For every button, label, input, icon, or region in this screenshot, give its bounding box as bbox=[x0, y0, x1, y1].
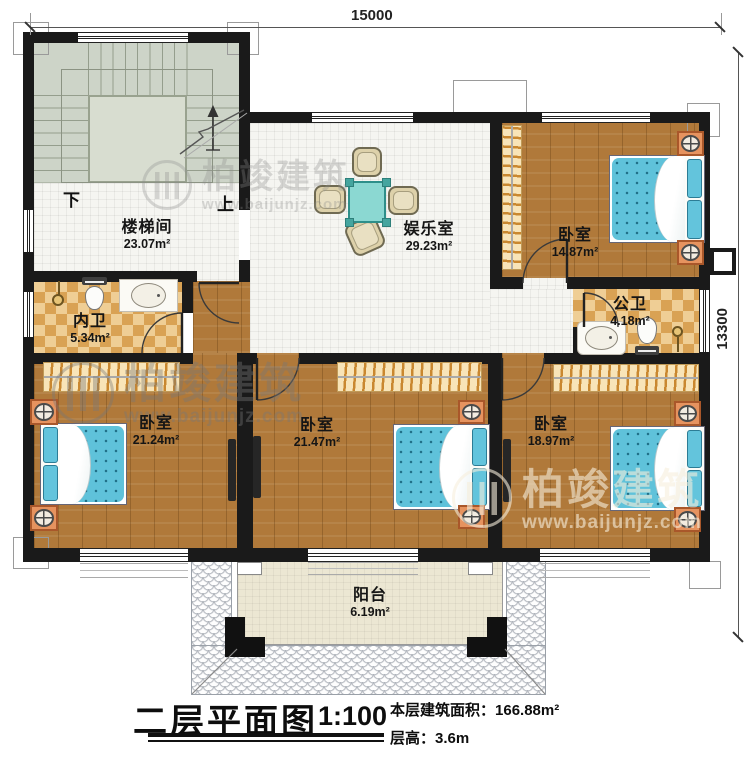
wall-segment bbox=[418, 548, 540, 562]
room-label-bedroom-s: 卧室21.47m² bbox=[269, 416, 365, 450]
wall-segment bbox=[237, 364, 253, 548]
wall-segment bbox=[567, 277, 710, 289]
stair-down-label: 下 bbox=[63, 186, 80, 211]
table-corner bbox=[382, 178, 391, 187]
dimension-line-right bbox=[738, 52, 739, 638]
rarea: 18.97m² bbox=[503, 434, 599, 449]
wall-segment bbox=[413, 112, 542, 123]
tv bbox=[253, 436, 261, 498]
pillow bbox=[687, 159, 702, 198]
title-underline bbox=[148, 733, 384, 737]
window bbox=[80, 548, 188, 562]
room-label-bath-inner: 内卫5.34m² bbox=[42, 312, 138, 346]
chair bbox=[388, 186, 419, 215]
headboard bbox=[684, 427, 704, 510]
table-corner bbox=[345, 178, 354, 187]
room-label-balcony: 阳台6.19m² bbox=[322, 586, 418, 620]
headboard bbox=[684, 156, 704, 242]
wall-segment bbox=[544, 353, 710, 364]
chimney-outline bbox=[453, 80, 527, 115]
pillow bbox=[687, 430, 702, 468]
pillow bbox=[687, 470, 702, 508]
floor-plan: 下 上 bbox=[0, 0, 750, 757]
decor: 3.6m bbox=[435, 730, 469, 747]
floor-area-text: 本层建筑面积：166.88m² bbox=[390, 699, 559, 720]
floor-height-text: 层高：3.6m bbox=[390, 727, 469, 748]
window bbox=[23, 210, 34, 252]
rname: 卧室 bbox=[503, 415, 599, 434]
window-sill bbox=[540, 563, 650, 578]
room-label-bedroom-se: 卧室18.97m² bbox=[503, 415, 599, 449]
pillow bbox=[472, 468, 487, 506]
nightstand bbox=[677, 131, 704, 156]
bed bbox=[610, 426, 705, 511]
wardrobe bbox=[43, 362, 180, 392]
wall-segment bbox=[490, 277, 523, 289]
pillow bbox=[43, 427, 58, 463]
rname: 卧室 bbox=[527, 226, 623, 245]
decor: 层高： bbox=[390, 730, 435, 747]
rname: 阳台 bbox=[322, 586, 418, 605]
sink-basin bbox=[131, 283, 166, 308]
flue-box bbox=[710, 248, 736, 275]
dimension-height: 13300 bbox=[714, 305, 731, 353]
door-gap bbox=[523, 277, 567, 289]
balcony-post bbox=[237, 562, 262, 575]
rname: 娱乐室 bbox=[381, 220, 477, 239]
wardrobe bbox=[502, 125, 522, 270]
window bbox=[78, 32, 188, 43]
headboard bbox=[469, 425, 489, 509]
nightstand bbox=[458, 400, 485, 424]
floor-drain bbox=[52, 294, 64, 306]
wardrobe bbox=[337, 362, 482, 392]
wall-segment bbox=[249, 112, 312, 123]
wall-segment bbox=[650, 548, 710, 562]
wall-segment bbox=[490, 112, 502, 277]
rarea: 29.23m² bbox=[381, 239, 477, 254]
t-tank bbox=[82, 277, 107, 285]
bed bbox=[609, 155, 705, 243]
passage-floor bbox=[490, 289, 575, 353]
headboard bbox=[41, 424, 61, 504]
nightstand bbox=[30, 399, 58, 425]
decor: 本层建筑面积： bbox=[390, 702, 495, 719]
sink-basin bbox=[585, 326, 618, 350]
dimension-width: 15000 bbox=[348, 7, 396, 24]
rarea: 4.18m² bbox=[582, 314, 678, 329]
rname: 卧室 bbox=[269, 416, 365, 435]
pillow bbox=[472, 428, 487, 466]
wardrobe bbox=[553, 364, 699, 392]
balcony-door-sill bbox=[308, 562, 418, 575]
window bbox=[540, 548, 650, 562]
rarea: 6.19m² bbox=[322, 605, 418, 620]
rname: 卧室 bbox=[108, 414, 204, 433]
rarea: 21.47m² bbox=[269, 435, 365, 450]
corner-marker bbox=[689, 561, 721, 589]
wall-segment bbox=[239, 43, 250, 210]
balcony-sliding-door bbox=[308, 548, 418, 562]
rname: 公卫 bbox=[582, 295, 678, 314]
wall-segment bbox=[488, 353, 502, 548]
wall-segment bbox=[23, 32, 34, 210]
nightstand bbox=[30, 505, 58, 531]
nightstand bbox=[674, 507, 701, 532]
rarea: 5.34m² bbox=[42, 331, 138, 346]
window-sill bbox=[80, 563, 188, 578]
extension-line bbox=[30, 13, 31, 35]
title-underline bbox=[148, 740, 384, 742]
rname: 楼梯间 bbox=[99, 218, 195, 237]
rarea: 14.87m² bbox=[527, 245, 623, 260]
decor: 166.88m² bbox=[495, 702, 559, 719]
t-bowl bbox=[85, 286, 104, 310]
nightstand bbox=[674, 401, 701, 426]
dimension-line-top bbox=[30, 27, 722, 28]
wall-segment bbox=[182, 271, 193, 313]
window bbox=[699, 290, 710, 352]
room-label-bedroom-sw: 卧室21.24m² bbox=[108, 414, 204, 448]
rarea: 21.24m² bbox=[108, 433, 204, 448]
floor-drain bbox=[677, 337, 679, 352]
wall-segment bbox=[23, 548, 80, 562]
room-label-bedroom-ne: 卧室14.87m² bbox=[527, 226, 623, 260]
chair bbox=[352, 147, 382, 177]
plan-scale: 1:100 bbox=[318, 701, 387, 732]
rarea: 23.07m² bbox=[99, 237, 195, 252]
window bbox=[312, 112, 413, 123]
extension-line bbox=[721, 13, 722, 35]
window bbox=[23, 292, 34, 337]
wall-segment bbox=[188, 32, 250, 43]
window bbox=[542, 112, 650, 123]
toilet bbox=[82, 277, 108, 311]
room-label-stairwell: 楼梯间23.07m² bbox=[99, 218, 195, 252]
balcony-pillar bbox=[225, 637, 265, 657]
table-corner bbox=[345, 218, 354, 227]
room-label-entertainment: 娱乐室29.23m² bbox=[381, 220, 477, 254]
tv bbox=[228, 439, 236, 501]
stair-railing bbox=[61, 69, 213, 183]
rname: 内卫 bbox=[42, 312, 138, 331]
balcony-post bbox=[468, 562, 493, 575]
nightstand bbox=[458, 505, 485, 529]
chair bbox=[314, 185, 346, 214]
game-table bbox=[348, 181, 386, 223]
bed bbox=[393, 424, 490, 510]
stair-up-label: 上 bbox=[217, 190, 234, 215]
wall-segment bbox=[237, 353, 257, 364]
pillow bbox=[43, 465, 58, 501]
wall-segment bbox=[239, 260, 250, 282]
room-label-bath-public: 公卫4.18m² bbox=[582, 295, 678, 329]
nightstand bbox=[677, 240, 704, 265]
t-tank bbox=[635, 346, 659, 355]
pillow bbox=[687, 200, 702, 239]
balcony-pillar bbox=[467, 637, 507, 657]
wall-segment bbox=[188, 548, 308, 562]
